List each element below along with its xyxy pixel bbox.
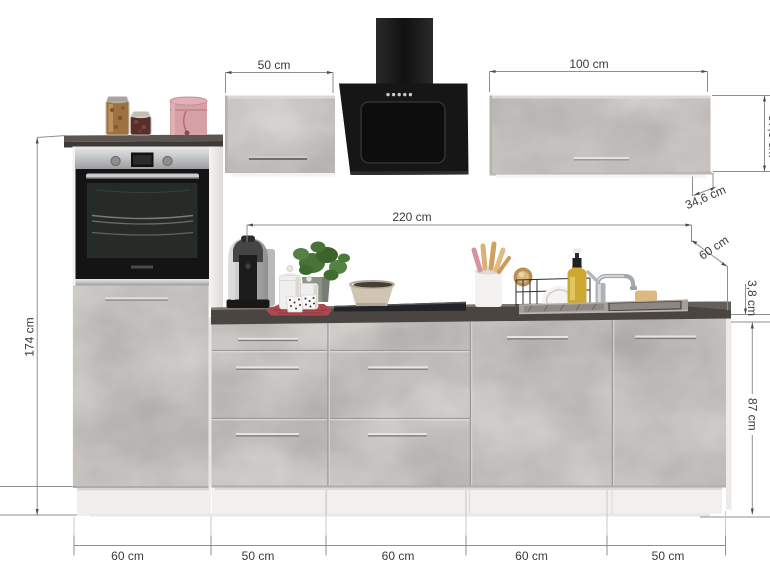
svg-text:220 cm: 220 cm <box>392 210 431 224</box>
svg-text:3,8 cm: 3,8 cm <box>745 280 759 316</box>
svg-text:50 cm: 50 cm <box>258 58 291 72</box>
svg-text:50 cm: 50 cm <box>242 549 275 563</box>
svg-text:100 cm: 100 cm <box>569 57 608 71</box>
svg-text:174 cm: 174 cm <box>23 317 37 356</box>
svg-text:50 cm: 50 cm <box>652 549 685 563</box>
svg-text:60 cm: 60 cm <box>382 549 415 563</box>
svg-text:87 cm: 87 cm <box>746 398 760 431</box>
svg-text:60 cm: 60 cm <box>515 549 548 563</box>
svg-text:57,6 cm: 57,6 cm <box>766 115 770 158</box>
svg-text:60 cm: 60 cm <box>111 549 144 563</box>
